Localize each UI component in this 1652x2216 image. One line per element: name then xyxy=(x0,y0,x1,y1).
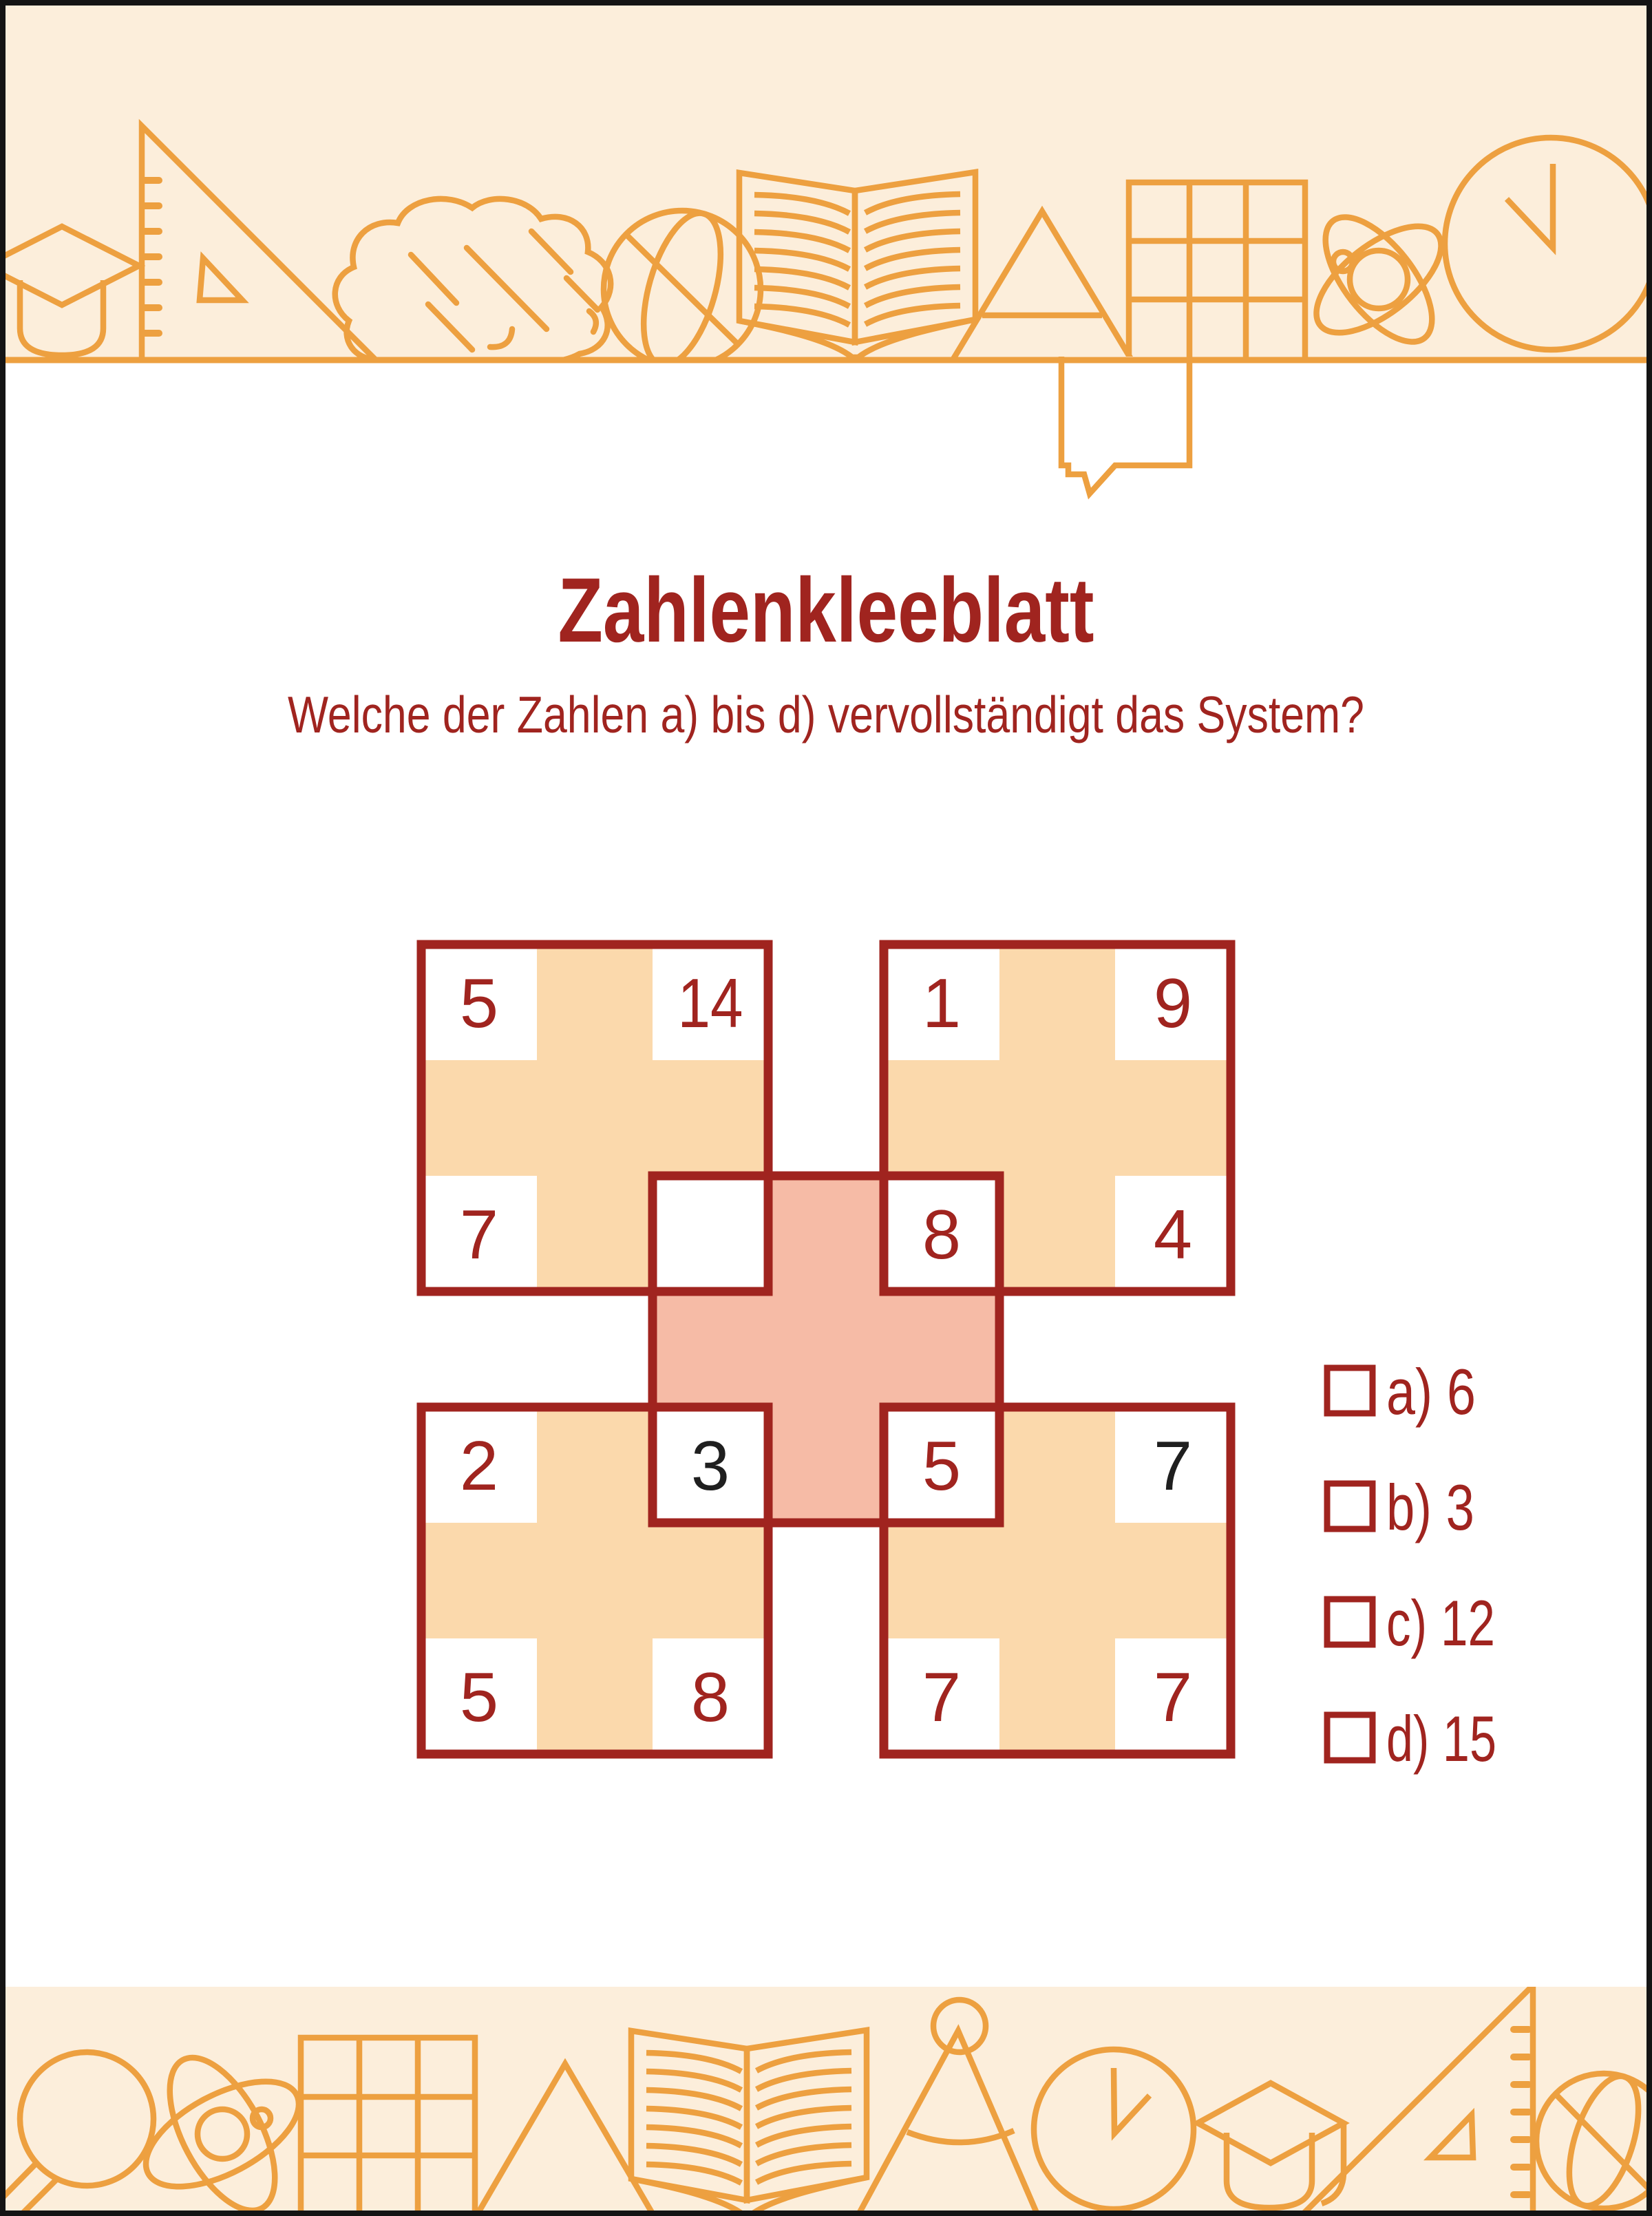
svg-text:2: 2 xyxy=(460,1428,498,1505)
svg-text:Zahlenkleeblatt: Zahlenkleeblatt xyxy=(558,560,1094,662)
svg-text:5: 5 xyxy=(922,1428,961,1505)
svg-text:d) 15: d) 15 xyxy=(1386,1702,1496,1775)
svg-text:4: 4 xyxy=(1154,1196,1192,1274)
svg-text:8: 8 xyxy=(691,1659,730,1736)
svg-text:c) 12: c) 12 xyxy=(1386,1587,1495,1659)
svg-text:Welche der Zahlen a) bis d) ve: Welche der Zahlen a) bis d) vervollständ… xyxy=(288,686,1364,743)
svg-text:7: 7 xyxy=(460,1196,498,1274)
svg-text:5: 5 xyxy=(460,965,498,1042)
svg-text:7: 7 xyxy=(922,1659,961,1736)
svg-text:7: 7 xyxy=(1154,1659,1192,1736)
svg-text:1: 1 xyxy=(922,965,961,1042)
svg-text:3: 3 xyxy=(691,1428,730,1505)
svg-text:b) 3: b) 3 xyxy=(1386,1471,1474,1543)
svg-text:14: 14 xyxy=(678,965,743,1042)
svg-text:5: 5 xyxy=(460,1659,498,1736)
svg-text:9: 9 xyxy=(1154,965,1192,1042)
svg-text:a) 6: a) 6 xyxy=(1386,1355,1476,1428)
svg-text:8: 8 xyxy=(922,1196,961,1274)
svg-text:7: 7 xyxy=(1154,1428,1192,1505)
